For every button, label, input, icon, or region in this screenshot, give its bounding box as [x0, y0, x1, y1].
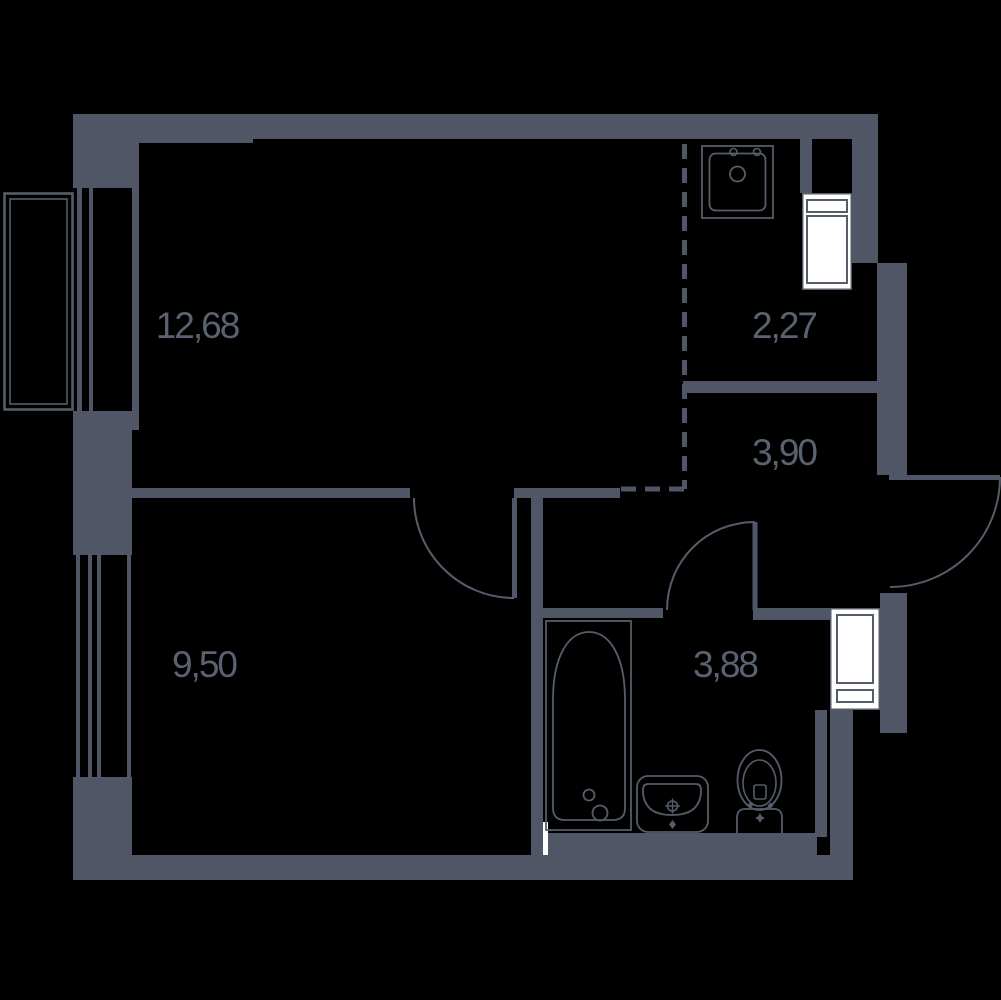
room-label-bedroom: 9,50: [172, 644, 237, 685]
loggia: [5, 194, 73, 410]
bottom-right-column: [830, 710, 853, 880]
door-swing-arc: [667, 522, 755, 610]
window-frame-line: [77, 188, 82, 411]
bathroom-top-wall-left: [531, 608, 663, 618]
kitchen-sink: [702, 146, 773, 218]
living-room-window: [77, 188, 139, 411]
appliance-cabinet-top: [803, 194, 852, 290]
room-label-living-room: 12,68: [156, 305, 239, 346]
window-frame-line: [97, 555, 101, 780]
loggia-outline: [5, 194, 73, 410]
right-wall-lower: [880, 593, 907, 733]
sink-drain: [730, 167, 745, 182]
window-frame-line: [89, 188, 93, 411]
washbasin-sparkle: [669, 820, 676, 829]
toilet-sparkle: [755, 813, 765, 823]
cabinet-body: [803, 194, 852, 290]
bedroom-bathroom-wall: [531, 488, 543, 855]
faucet-hole: [730, 149, 737, 156]
washbasin: [637, 776, 708, 832]
bathroom-door: [667, 522, 755, 610]
kitchen-hallway-wall: [683, 381, 907, 393]
bedroom-window: [76, 555, 131, 780]
door-swing-arc: [890, 477, 1000, 587]
kitchen-zone-dashed-boundary: [618, 144, 685, 489]
room-label-bathroom: 3,88: [693, 644, 757, 685]
right-wall-mid: [877, 263, 907, 475]
living-room-door: [414, 498, 515, 598]
entrance-door: [889, 477, 1000, 587]
bathtub-faucet: [593, 806, 608, 821]
left-wall-mid-pier-a: [73, 411, 139, 430]
window-inner-face: [127, 555, 131, 780]
room-label-hallway: 3,90: [752, 432, 817, 473]
window-inner-face: [132, 188, 139, 411]
toilet-bowl: [738, 750, 782, 810]
bathtub-drain: [584, 790, 595, 801]
bathroom-top-wall-right: [753, 608, 830, 620]
cabinet-body: [831, 609, 880, 710]
toilet: [737, 750, 782, 833]
faucet-hole: [754, 149, 761, 156]
bathtub-basin: [553, 632, 625, 820]
bathroom-right-wall: [815, 710, 827, 837]
interior-walls: [131, 139, 907, 855]
left-wall-mid-pier-b: [73, 430, 132, 555]
bathtub: [546, 621, 631, 830]
floor-plan-svg: 12,68 2,27 3,90 9,50 3,88: [0, 0, 1001, 1000]
bathtub-outline: [546, 621, 631, 830]
window-frame-line: [76, 555, 80, 780]
bathroom-bottom-bar: [548, 833, 817, 855]
appliance-cabinet-right: [831, 609, 880, 710]
living-bedroom-wall-right: [514, 488, 620, 498]
window-frame-line: [88, 555, 92, 780]
loggia-inner-outline: [10, 199, 67, 404]
bottom-wall: [73, 855, 853, 880]
top-left-block: [73, 114, 139, 188]
top-wall: [73, 114, 878, 139]
kitchen-niche-pier: [800, 139, 812, 193]
door-swing-arc: [414, 498, 514, 598]
floor-plan: 12,68 2,27 3,90 9,50 3,88: [0, 0, 1001, 1000]
bathtub-mixer-handle: [572, 801, 584, 827]
right-wall-top: [852, 139, 878, 263]
living-bedroom-wall: [131, 488, 410, 498]
room-label-kitchen-niche: 2,27: [752, 305, 816, 346]
toilet-flush-opening: [754, 785, 766, 799]
